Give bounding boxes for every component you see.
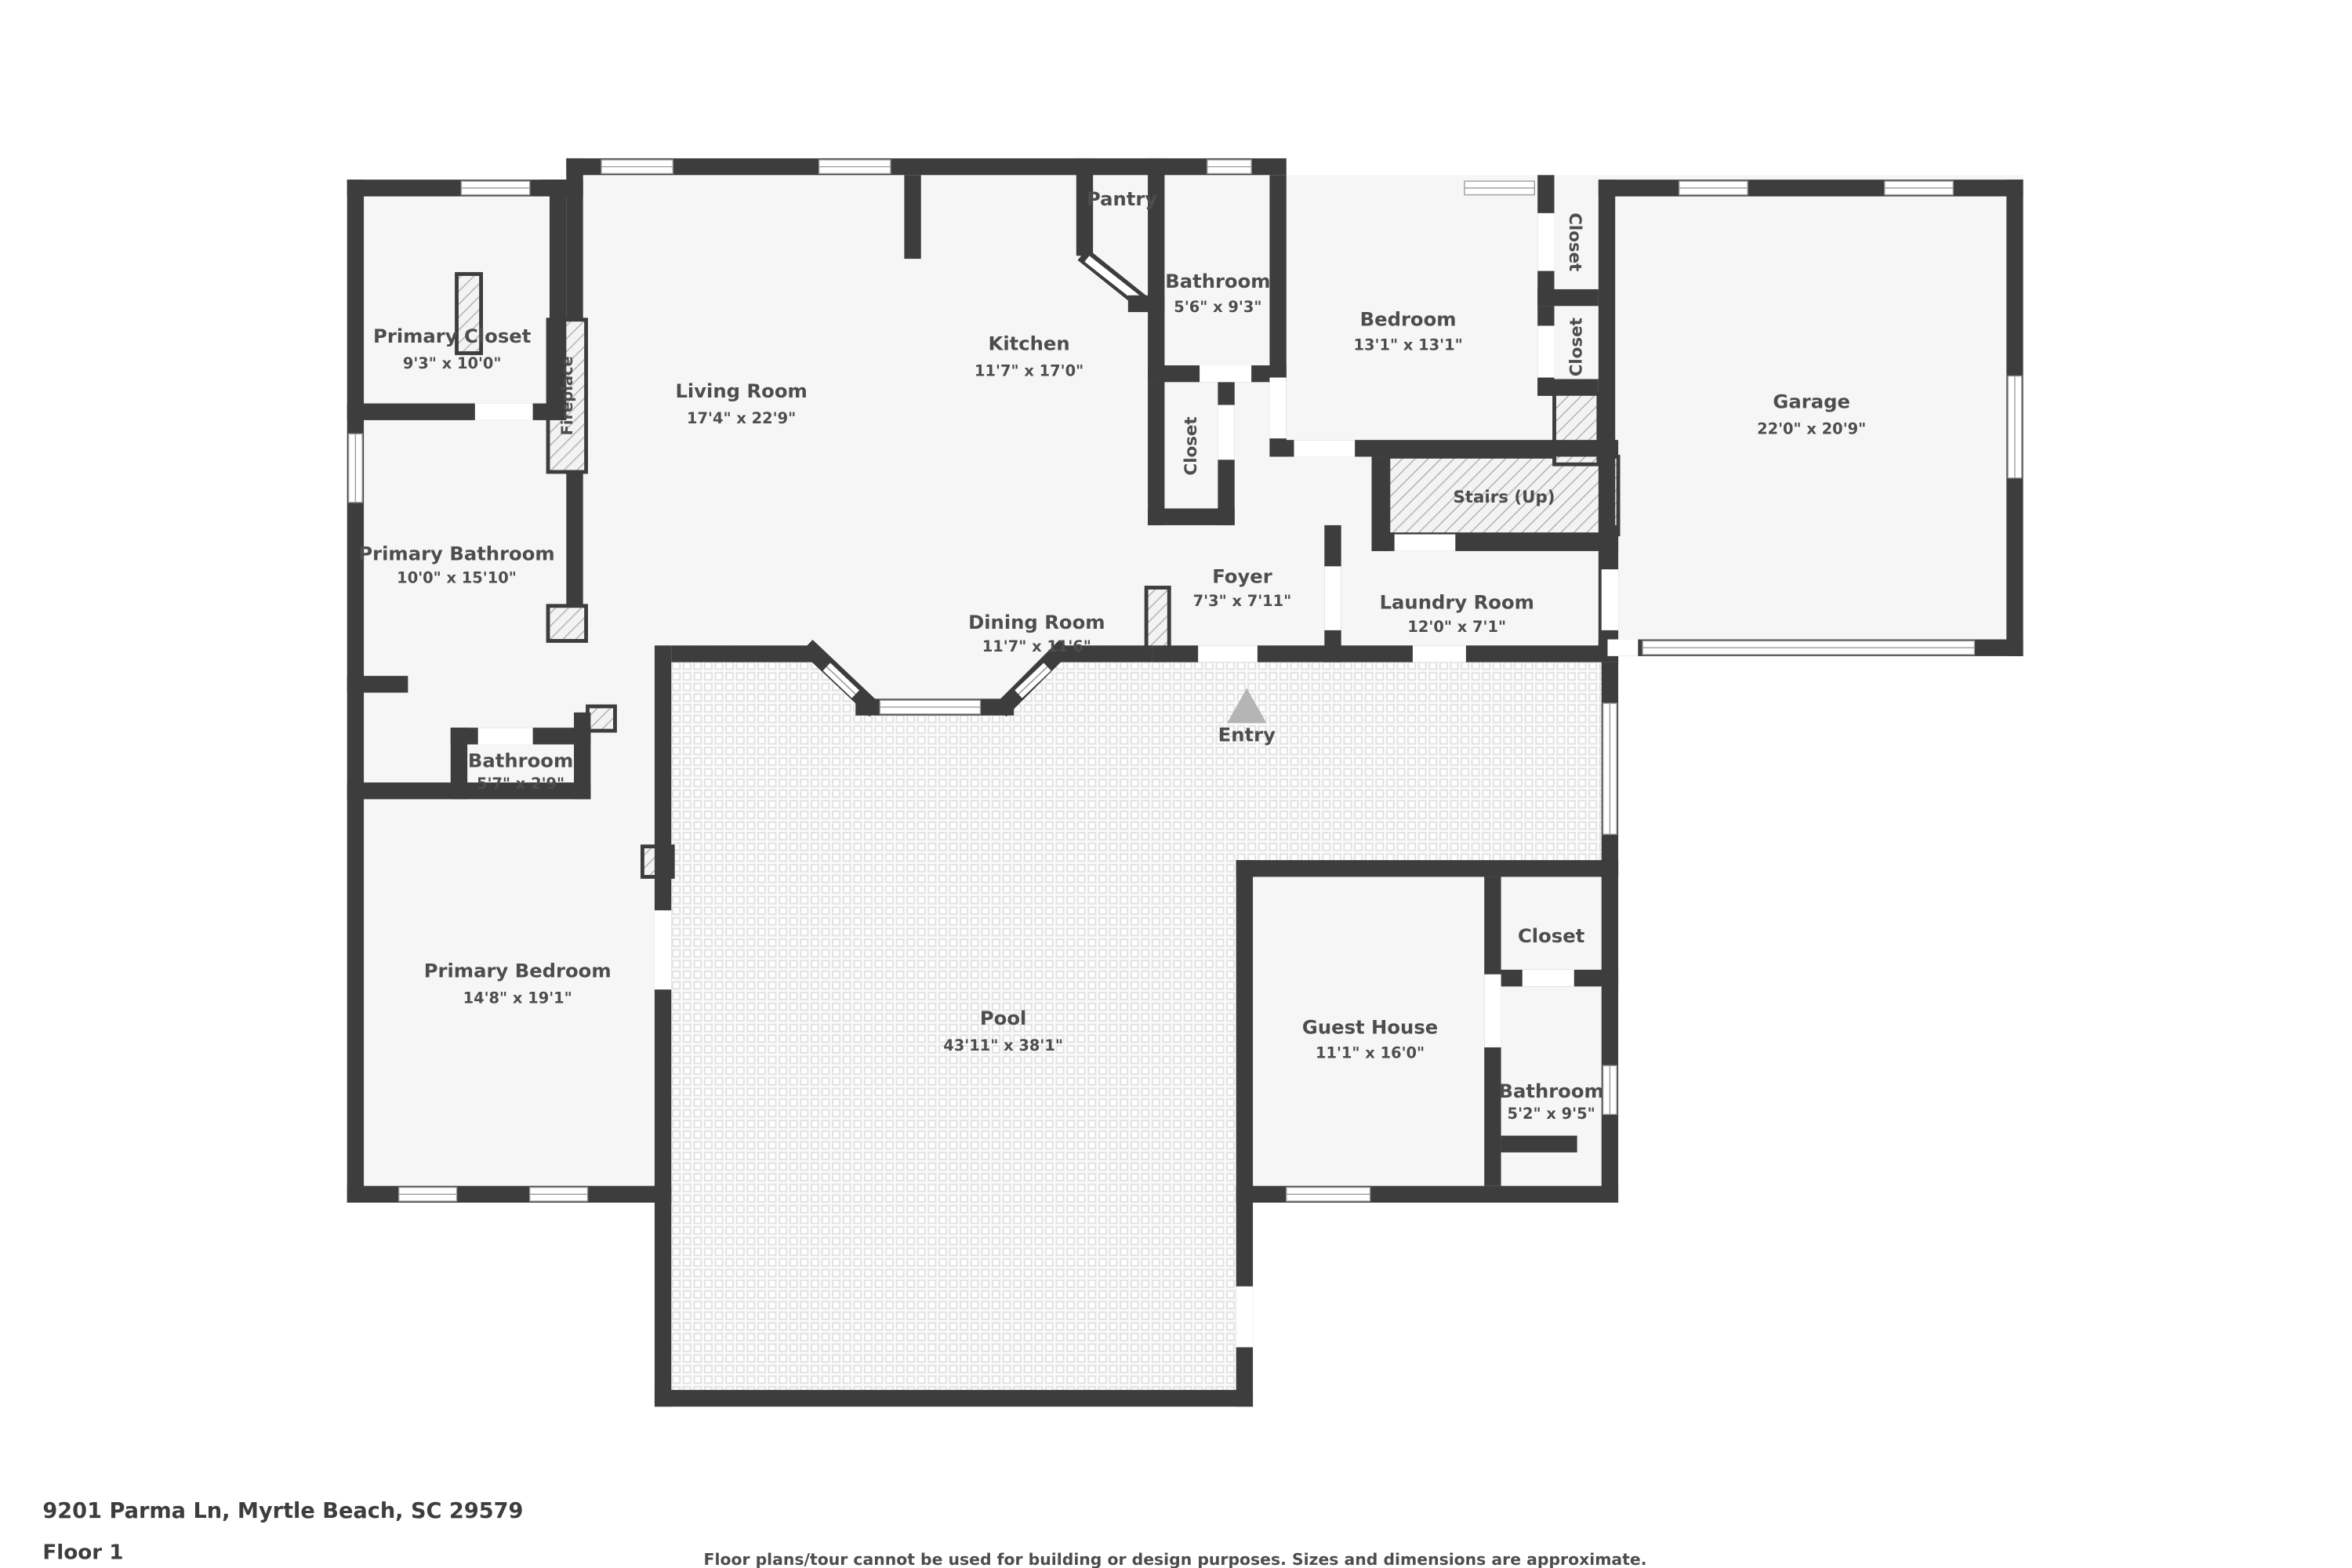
entry-patio-tile-area — [1253, 662, 1618, 877]
footer: 9201 Parma Ln, Myrtle Beach, SC 29579 Fl… — [42, 1499, 1646, 1568]
label-fireplace: Fireplace — [558, 356, 576, 435]
wall-nook-hatch — [548, 606, 586, 641]
bath-fixture-hatch — [588, 706, 615, 731]
window — [1465, 181, 1534, 194]
room-dims-living: 17'4" x 22'9" — [687, 409, 796, 427]
room-label-guest-closet: Closet — [1518, 924, 1585, 947]
window — [819, 160, 891, 173]
room-dims-bathroom-hall: 5'7" x 2'9" — [477, 775, 564, 793]
room-label-primary-bedroom: Primary Bedroom — [424, 960, 612, 982]
room-label-pantry: Pantry — [1087, 187, 1157, 210]
window — [2008, 376, 2021, 478]
window — [349, 434, 362, 502]
room-dims-pool: 43'11" x 38'1" — [943, 1036, 1063, 1054]
window — [601, 160, 673, 173]
room-label-living: Living Room — [675, 379, 807, 402]
room-dims-primary-bathroom: 10'0" x 15'10" — [397, 569, 517, 587]
window — [1287, 1188, 1370, 1201]
room-dims-bedroom: 13'1" x 13'1" — [1354, 336, 1463, 354]
bay-side-window-panel — [1146, 588, 1169, 652]
disclaimer-text: Floor plans/tour cannot be used for buil… — [704, 1550, 1647, 1568]
window — [1885, 181, 1953, 194]
window — [1603, 1065, 1617, 1114]
room-dims-foyer: 7'3" x 7'11" — [1193, 592, 1292, 610]
room-dims-dining: 11'7" x 11'6" — [982, 637, 1091, 655]
window — [461, 181, 529, 194]
room-label-kitchen: Kitchen — [989, 332, 1070, 355]
room-label-foyer: Foyer — [1212, 565, 1272, 588]
window — [1679, 181, 1748, 194]
living-kitchen-floor — [566, 158, 1286, 645]
room-dims-laundry: 12'0" x 7'1" — [1407, 618, 1506, 636]
room-label-pool: Pool — [980, 1007, 1026, 1029]
window — [880, 700, 980, 713]
room-label-guest-bathroom: Bathroom — [1498, 1080, 1603, 1102]
room-dims-guest-house: 11'1" x 16'0" — [1316, 1044, 1425, 1062]
room-dims-bathroom-main: 5'6" x 9'3" — [1174, 298, 1261, 316]
pool-tile-area — [671, 645, 1253, 1406]
room-label-primary-bathroom: Primary Bathroom — [358, 543, 554, 565]
room-dims-garage: 22'0" x 20'9" — [1757, 419, 1866, 437]
window — [530, 1188, 588, 1201]
sliding-glass-door — [1603, 703, 1617, 834]
room-label-stairs: Stairs (Up) — [1453, 488, 1555, 507]
window — [399, 1188, 457, 1201]
room-dims-primary-closet: 9'3" x 10'0" — [403, 354, 502, 372]
room-dims-kitchen: 11'7" x 17'0" — [975, 362, 1083, 380]
room-label-bathroom-main: Bathroom — [1165, 270, 1270, 292]
room-label-primary-closet: Primary Closet — [373, 325, 532, 347]
address-text: 9201 Parma Ln, Myrtle Beach, SC 29579 — [42, 1499, 523, 1523]
room-label-dining: Dining Room — [968, 611, 1105, 633]
room-dims-guest-bathroom: 5'2" x 9'5" — [1508, 1105, 1595, 1123]
room-label-bedroom-closet-2: Closet — [1566, 318, 1586, 376]
room-label-garage: Garage — [1773, 390, 1849, 412]
window — [1207, 160, 1251, 173]
room-label-bedroom: Bedroom — [1360, 308, 1457, 331]
room-label-kitchen-closet: Closet — [1181, 416, 1201, 475]
room-label-entry: Entry — [1218, 724, 1276, 746]
room-dims-primary-bedroom: 14'8" x 19'1" — [463, 989, 572, 1007]
garage-door — [1642, 641, 1974, 654]
floor-label: Floor 1 — [42, 1541, 123, 1564]
room-label-guest-house: Guest House — [1302, 1015, 1438, 1038]
floor-plan: Primary Closet 9'3" x 10'0" Fireplace Li… — [0, 0, 2352, 1568]
room-label-bedroom-closet-1: Closet — [1565, 212, 1584, 271]
room-label-bathroom-hall: Bathroom — [468, 750, 573, 772]
room-label-laundry: Laundry Room — [1380, 591, 1534, 614]
